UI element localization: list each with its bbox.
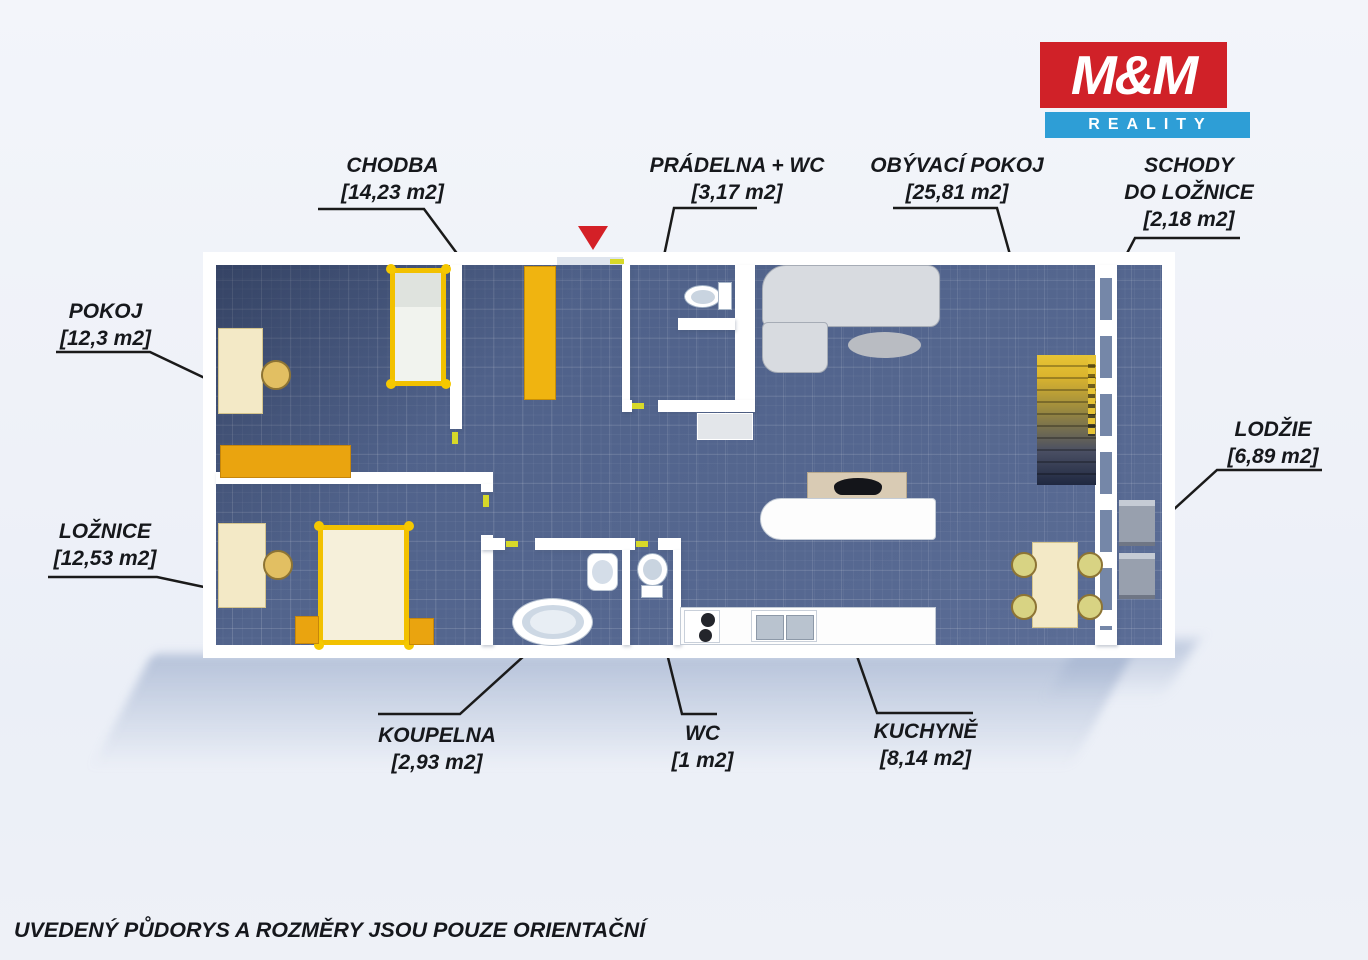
- bed-knob: [314, 521, 324, 531]
- corner-sofa-leg: [762, 322, 828, 373]
- cabinet: [697, 413, 753, 440]
- nightstand: [409, 618, 434, 645]
- floor-plan: [203, 252, 1175, 658]
- kitchen-sink: [751, 610, 817, 642]
- wall: [450, 265, 462, 429]
- disclaimer-text: UVEDENÝ PŮDORYS A ROZMĚRY JSOU POUZE ORI…: [14, 918, 645, 943]
- toilet-tank: [718, 282, 732, 310]
- washbasin: [587, 553, 618, 591]
- washbasin-inner: [592, 560, 613, 584]
- wall: [623, 252, 1175, 265]
- door-hinge-marker: [610, 259, 624, 264]
- toilet-bowl: [684, 285, 721, 308]
- loggia-bench: [1119, 553, 1155, 599]
- toilet-bowl-inner: [643, 559, 662, 580]
- dining-chair: [1077, 594, 1103, 620]
- desk: [218, 523, 266, 608]
- room-label-loznice: LOŽNICE[12,53 m2]: [20, 518, 190, 572]
- bed-knob: [404, 521, 414, 531]
- pillow: [395, 273, 441, 307]
- wall: [481, 535, 493, 645]
- stair-railing: [1088, 358, 1095, 436]
- bed-knob: [386, 379, 396, 389]
- loggia-bench: [1119, 500, 1155, 546]
- room-label-obyvaci-pokoj: OBÝVACÍ POKOJ[25,81 m2]: [853, 152, 1061, 206]
- wall: [203, 252, 557, 265]
- room-label-kuchyne: KUCHYNĚ[8,14 m2]: [848, 718, 1003, 772]
- room-label-chodba: CHODBA[14,23 m2]: [300, 152, 485, 206]
- tv-table: [807, 472, 907, 500]
- leader-lodzie: [1161, 470, 1322, 521]
- door-hinge-marker: [452, 432, 458, 444]
- bed-knob: [386, 264, 396, 274]
- dresser: [220, 445, 351, 478]
- toilet-tank: [641, 585, 663, 598]
- bed-knob: [441, 264, 451, 274]
- room-label-schody: SCHODYDO LOŽNICE[2,18 m2]: [1103, 152, 1275, 233]
- logo-bottom-text: REALITY: [1088, 116, 1212, 134]
- entrance-arrow-icon: [578, 226, 608, 250]
- double-bed: [318, 525, 409, 645]
- bathtub: [512, 598, 593, 646]
- wall: [203, 252, 216, 658]
- wall: [622, 265, 630, 412]
- wall: [658, 538, 681, 550]
- wall: [622, 550, 630, 645]
- dining-table: [1032, 542, 1078, 628]
- room-label-pradelna: PRÁDELNA + WC[3,17 m2]: [628, 152, 846, 206]
- room-label-pokoj: POKOJ[12,3 m2]: [28, 298, 183, 352]
- room-label-koupelna: KOUPELNA[2,93 m2]: [352, 722, 522, 776]
- window-panes: [1100, 278, 1112, 630]
- bed-knob: [441, 379, 451, 389]
- dining-chair: [1011, 552, 1037, 578]
- corner-sofa: [762, 265, 940, 327]
- stove: [684, 610, 720, 643]
- sink-basin: [786, 615, 814, 640]
- desk-chair: [261, 360, 291, 390]
- door-hinge-marker: [483, 495, 489, 507]
- wardrobe: [524, 266, 556, 400]
- single-bed: [390, 268, 446, 386]
- toilet-bowl-inner: [691, 290, 715, 304]
- wall: [678, 318, 735, 330]
- nightstand: [295, 616, 319, 644]
- tv: [834, 478, 882, 495]
- wall: [481, 538, 505, 550]
- wall: [1162, 252, 1175, 658]
- sink-basin: [756, 615, 784, 640]
- wall: [481, 484, 493, 492]
- door-hinge-marker: [636, 541, 648, 547]
- bathtub-floor: [530, 610, 576, 634]
- room-label-wc: WC[1 m2]: [650, 720, 755, 774]
- mm-reality-logo-banner: REALITY: [1045, 112, 1250, 138]
- wall: [658, 400, 755, 412]
- logo-top-text: M&M: [1071, 43, 1196, 107]
- toilet-bowl: [637, 553, 668, 586]
- wall: [203, 645, 1175, 658]
- desk: [218, 328, 263, 414]
- burner: [701, 613, 715, 627]
- bar-counter: [760, 498, 936, 540]
- wall: [735, 265, 755, 412]
- wall: [535, 538, 635, 550]
- door-hinge-marker: [632, 403, 644, 409]
- dining-chair: [1077, 552, 1103, 578]
- dining-chair: [1011, 594, 1037, 620]
- room-label-lodzie: LODŽIE[6,89 m2]: [1193, 416, 1353, 470]
- desk-chair: [263, 550, 293, 580]
- door-hinge-marker: [506, 541, 518, 547]
- burner: [699, 629, 712, 642]
- mm-reality-logo: M&M: [1040, 42, 1227, 108]
- wall: [622, 400, 632, 412]
- coffee-table: [848, 332, 921, 358]
